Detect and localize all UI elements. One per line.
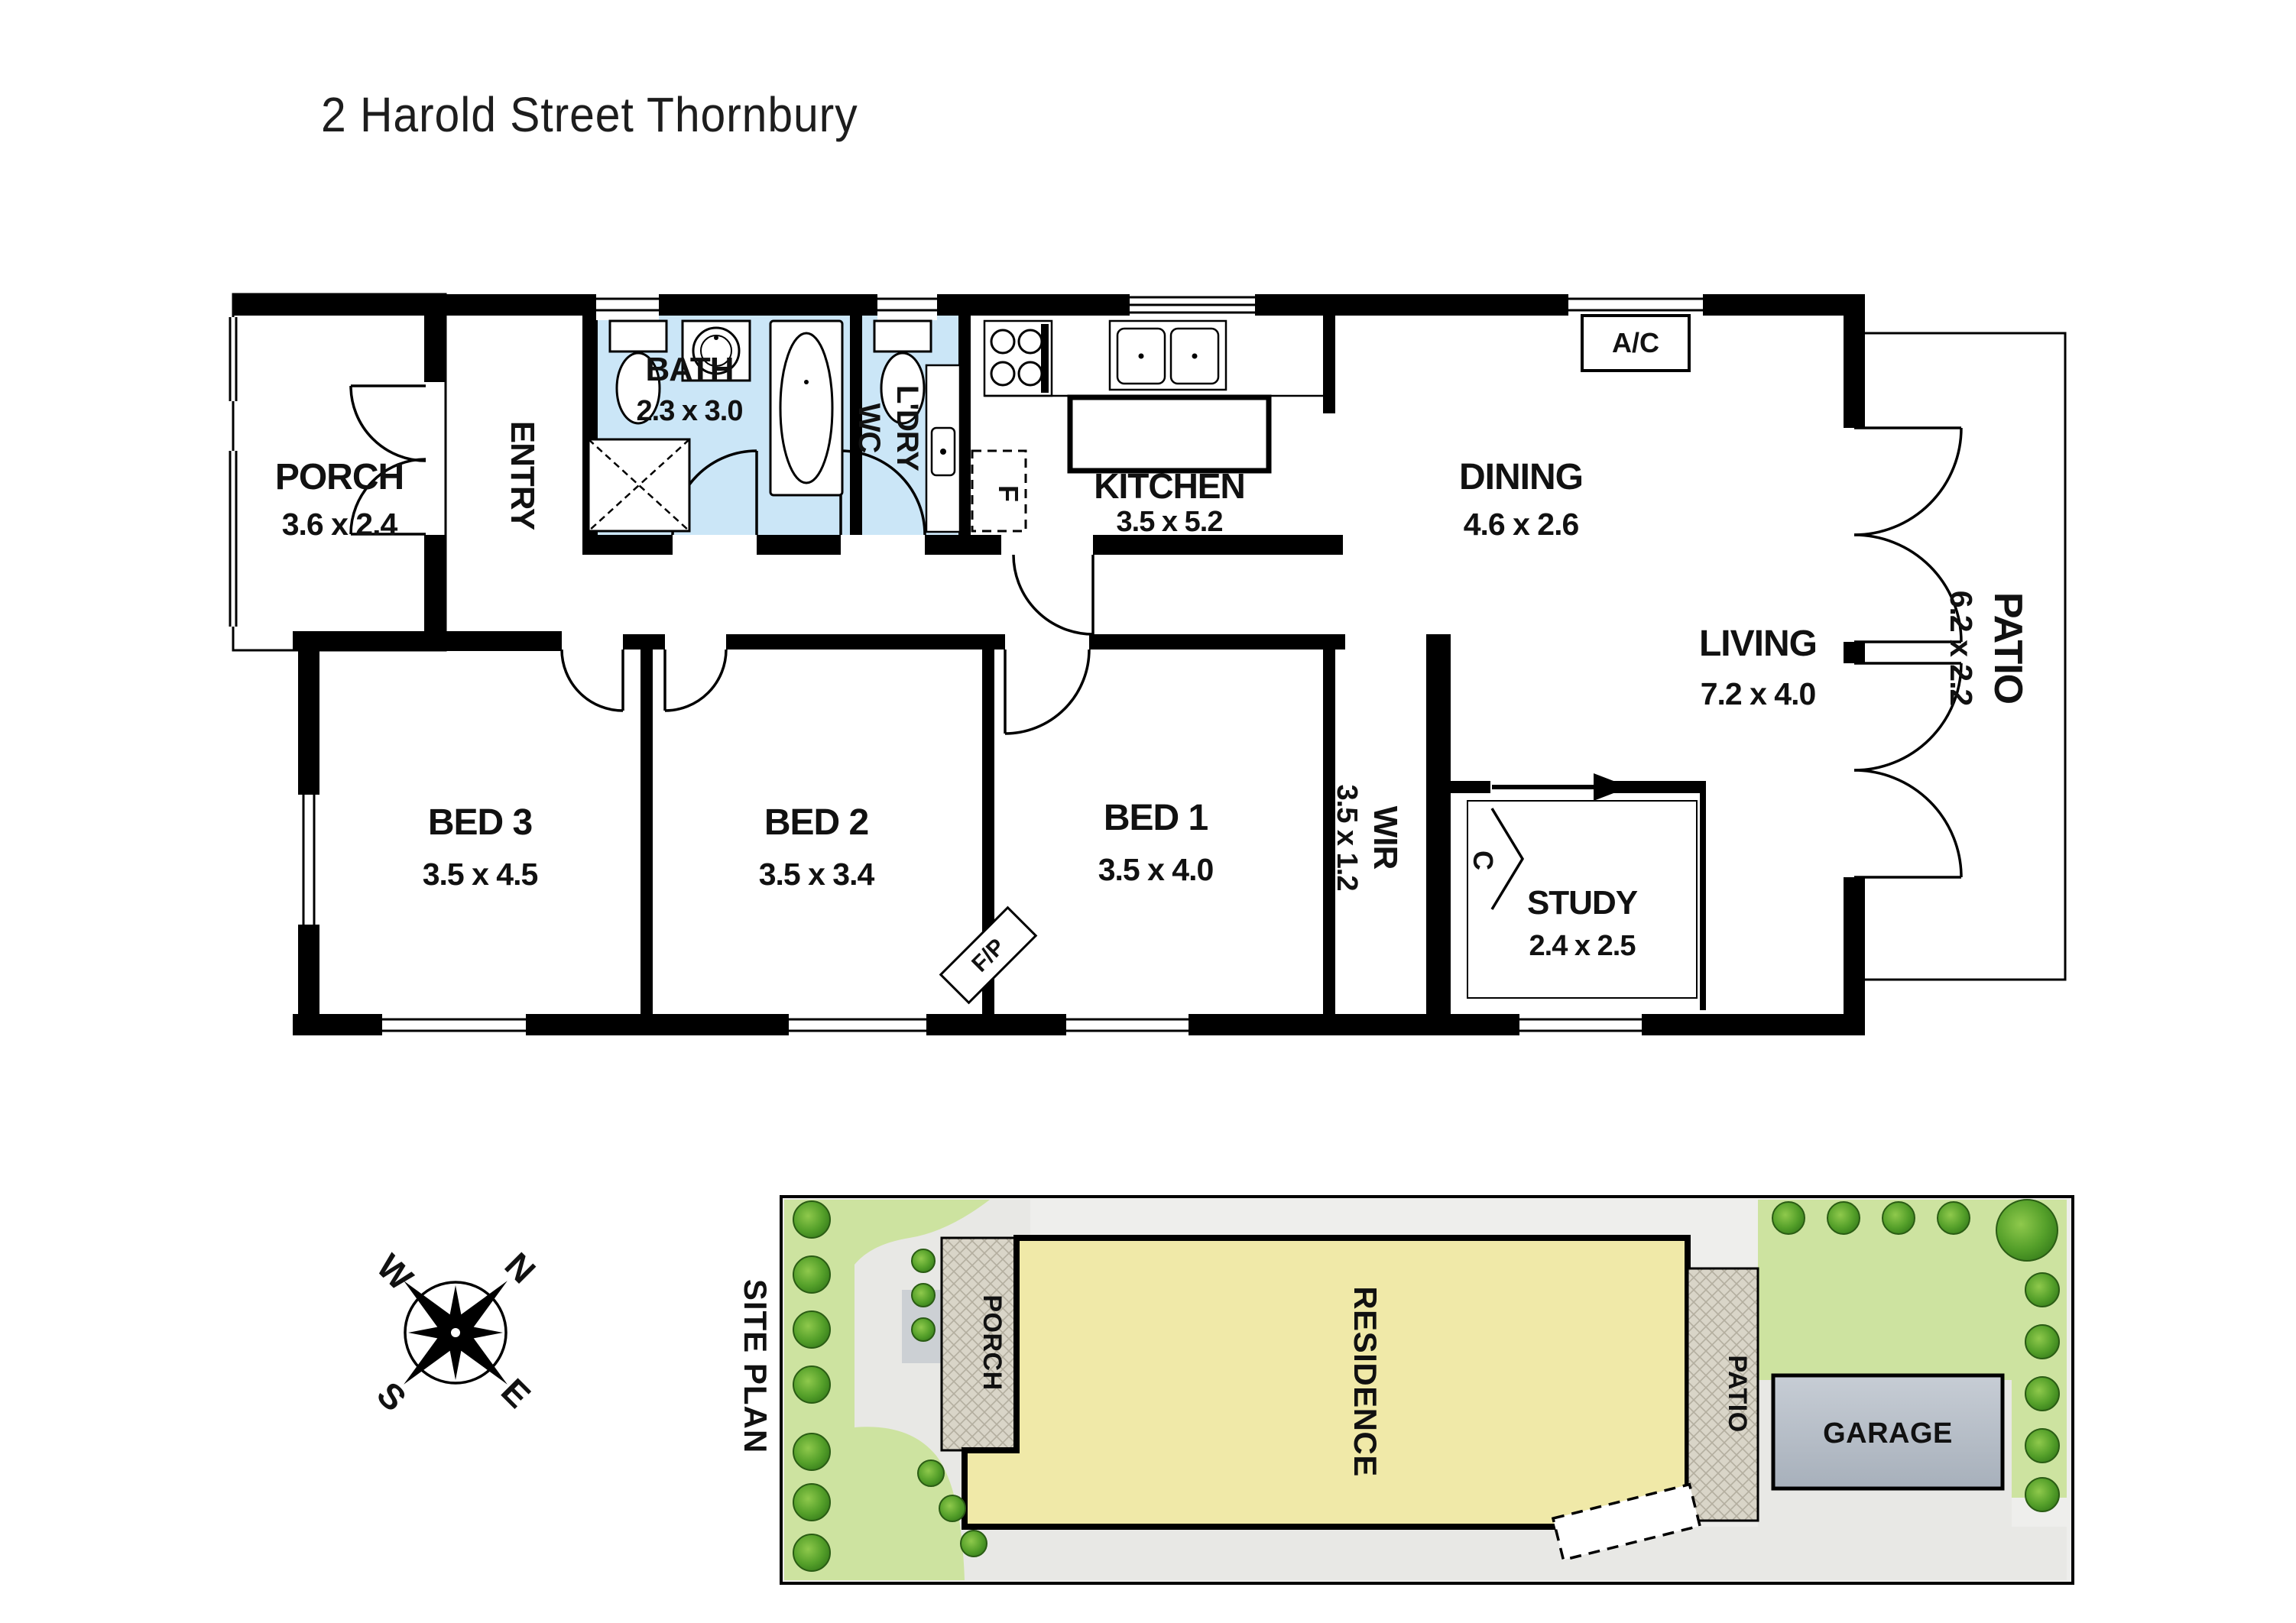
dining-label: DINING [1459,457,1583,497]
bush-icon [1772,1202,1805,1234]
ac-label: A/C [1612,327,1659,358]
fridge-label: F [993,485,1024,502]
bush-icon [1827,1202,1860,1234]
window [877,290,937,320]
patio-label: PATIO [1986,592,2030,704]
site-garage: GARAGE [1773,1375,2003,1489]
bush-icon [912,1318,935,1341]
bed2-label: BED 2 [764,802,868,843]
ac-unit: A/C [1582,316,1689,371]
bush-icon [918,1460,944,1486]
kitchen-dims: 3.5 x 5.2 [1117,506,1223,538]
window [293,795,324,925]
bush-icon [793,1433,830,1470]
laundry-trough-icon [926,365,960,532]
bush-icon [1883,1202,1915,1234]
cupboard-label: C [1467,850,1499,870]
stove-icon [984,321,1052,396]
window [596,290,659,320]
bed3-dims: 3.5 x 4.5 [423,857,538,892]
bed1-label: BED 1 [1104,798,1208,838]
bush-icon [2025,1429,2059,1463]
window [227,451,239,627]
kitchen-sink-icon [1110,321,1226,390]
site-patio-label: PATIO [1723,1355,1752,1432]
kitchen-label: KITCHEN [1094,466,1244,506]
wall-segment [1700,781,1706,1010]
bush-icon [961,1531,987,1557]
compass-rose: N E S W [306,1181,604,1479]
bed1-door [1005,650,1089,734]
bush-icon [793,1484,830,1521]
bush-icon [793,1201,830,1238]
wall-segment [1089,634,1345,650]
wall-segment [726,634,1005,650]
bed3-door [562,650,623,711]
wall-segment [424,316,446,382]
cupboard: C [1467,808,1523,909]
bed2-dims: 3.5 x 3.4 [759,857,875,892]
entry-label: ENTRY [504,421,541,530]
bush-icon [912,1249,935,1272]
wall-segment [582,535,673,555]
site-porch-label: PORCH [978,1294,1007,1390]
wall-segment [623,634,665,650]
dining-dims: 4.6 x 2.6 [1464,507,1579,542]
bush-icon [939,1495,965,1521]
site-residence: RESIDENCE [965,1238,1688,1527]
bed3-label: BED 3 [428,802,532,843]
wall-segment [1426,634,1451,1035]
wall-segment [1844,642,1865,663]
site-plan-label: SITE PLAN [738,1279,773,1453]
wc-label: WC [852,403,886,453]
study-dims: 2.4 x 2.5 [1529,930,1636,962]
wir-label: WIR [1367,806,1404,870]
wall-segment [757,535,841,555]
entry-direction-arrow [1492,773,1630,801]
wir-label-group: WIR 3.5 x 1.2 [1331,785,1404,891]
patio-label-group: PATIO 6.2 x 2.2 [1944,591,2030,706]
floorplan-canvas: 2 Harold Street Thornbury [0,0,2296,1623]
site-garage-label: GARAGE [1823,1417,1953,1450]
wall-segment [1844,294,1865,428]
window [789,1009,926,1040]
kitchen-island [1070,397,1269,471]
wall-segment [424,535,446,631]
bush-icon [793,1311,830,1348]
bed2-door [665,650,726,711]
window [1066,1009,1189,1040]
floor-plan: F A/C F/P [227,290,2065,1040]
site-patio: PATIO [1688,1268,1758,1521]
wall-segment [925,535,1001,555]
bush-icon [2025,1377,2059,1411]
porch-label: PORCH [275,457,404,497]
bath-dims: 2.3 x 3.0 [637,395,743,427]
wall-segment [640,650,653,1014]
bush-icon [2025,1325,2059,1359]
bath-label: BATH [646,351,734,388]
patio-dims: 6.2 x 2.2 [1944,591,1979,706]
window [382,1009,526,1040]
wall-segment [293,631,562,651]
floorplan-page: 2 Harold Street Thornbury [0,0,2296,1623]
window [227,317,239,401]
page-title: 2 Harold Street Thornbury [321,88,858,143]
site-porch: PORCH [942,1238,1017,1450]
fridge-space: F [972,451,1026,531]
bush-icon [793,1256,830,1293]
laundry-label: L'DRY [890,385,924,471]
bed1-dims: 3.5 x 4.0 [1098,852,1214,887]
bush-icon [793,1534,830,1571]
living-label: LIVING [1699,624,1817,664]
wall-segment [1323,316,1335,413]
wir-dims: 3.5 x 1.2 [1331,785,1363,891]
bush-icon [2025,1478,2059,1511]
rear-path [965,1527,2067,1580]
wall-segment [1844,877,1865,1035]
window [1130,290,1255,320]
living-dims: 7.2 x 4.0 [1701,676,1816,711]
bathtub-icon [770,321,842,495]
wall-segment [1451,781,1490,793]
bush-icon [1996,1200,2058,1261]
window [1519,1009,1642,1040]
bush-icon [912,1284,935,1307]
kitchen-door [1013,555,1093,634]
bush-icon [793,1366,830,1403]
site-plan: PORCH RESIDENCE PATIO GARAGE [738,1197,2073,1583]
walls [233,294,1865,1035]
porch-dims: 3.6 x 2.4 [282,507,398,542]
site-residence-label: RESIDENCE [1347,1286,1383,1477]
bush-icon [1938,1202,1970,1234]
shower-icon [589,439,689,531]
bush-icon [2025,1273,2059,1307]
study-label: STUDY [1527,884,1638,922]
